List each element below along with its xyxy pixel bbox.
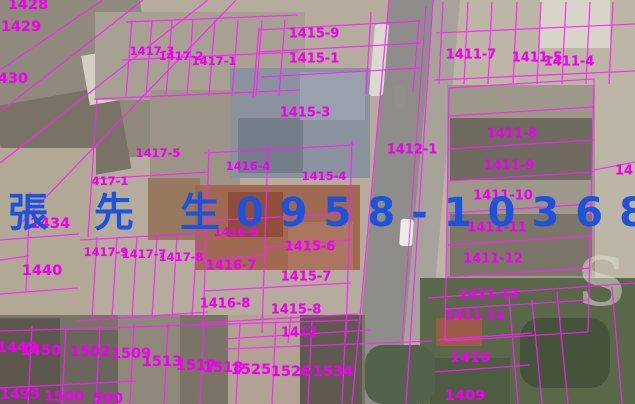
parcel-label: 1410 (450, 350, 490, 366)
parcel-label: 1450 (21, 343, 61, 359)
parcel-label: 1429 (1, 19, 41, 35)
parcel-label: 1417-5 (136, 146, 181, 160)
phone-watermark: 張 先 生0958-103680 (8, 180, 635, 238)
parcel-label: 1495 (0, 387, 40, 403)
parcel-label: 14 (615, 164, 633, 179)
parcel-label: 1525 (231, 362, 271, 378)
parcel-label: 1417-1 (192, 54, 237, 68)
parcel-label: 1428 (8, 0, 48, 13)
parcel-label: 1534 (313, 364, 353, 380)
parcel-label: 1416-4 (226, 159, 271, 173)
parcel-label: 1502 (70, 344, 110, 360)
parcel-label: 1417-8 (159, 250, 204, 264)
parcel-label: 500 (93, 391, 123, 404)
parcel-label: 1415-9 (289, 27, 340, 42)
parcel-label: 1415-8 (271, 303, 322, 318)
parcel-label: 1416-8 (200, 297, 251, 312)
parcel-label: 1415-1 (289, 52, 340, 67)
parcel-label: 1412 (281, 326, 317, 341)
parcel-label: 1411-13 (459, 288, 519, 303)
parcel-label: 1500 (44, 389, 84, 404)
parcel-label: 1411-7 (446, 48, 497, 63)
parcel-label: 1415-7 (281, 270, 332, 285)
parcel-label: 1409 (445, 388, 485, 404)
parcel-label: 1526 (271, 364, 311, 380)
parcel-label: 1440 (22, 263, 62, 279)
parcel-label: 1411-4 (544, 55, 595, 70)
parcel-label: 1411-14 (445, 309, 505, 324)
parcel-label: 1411-8 (487, 127, 538, 142)
parcel-label: 1415-3 (280, 106, 331, 121)
parcel-label: 1412-1 (387, 143, 438, 158)
parcel-label: 1411-12 (463, 252, 523, 267)
parcel-label: 1416-7 (206, 259, 257, 274)
parcel-label: 1411-9 (484, 159, 535, 174)
cadastral-map-viewport[interactable]: S (0, 0, 635, 404)
parcel-label: 1415-6 (285, 240, 336, 255)
parcel-label: 430 (0, 71, 28, 87)
